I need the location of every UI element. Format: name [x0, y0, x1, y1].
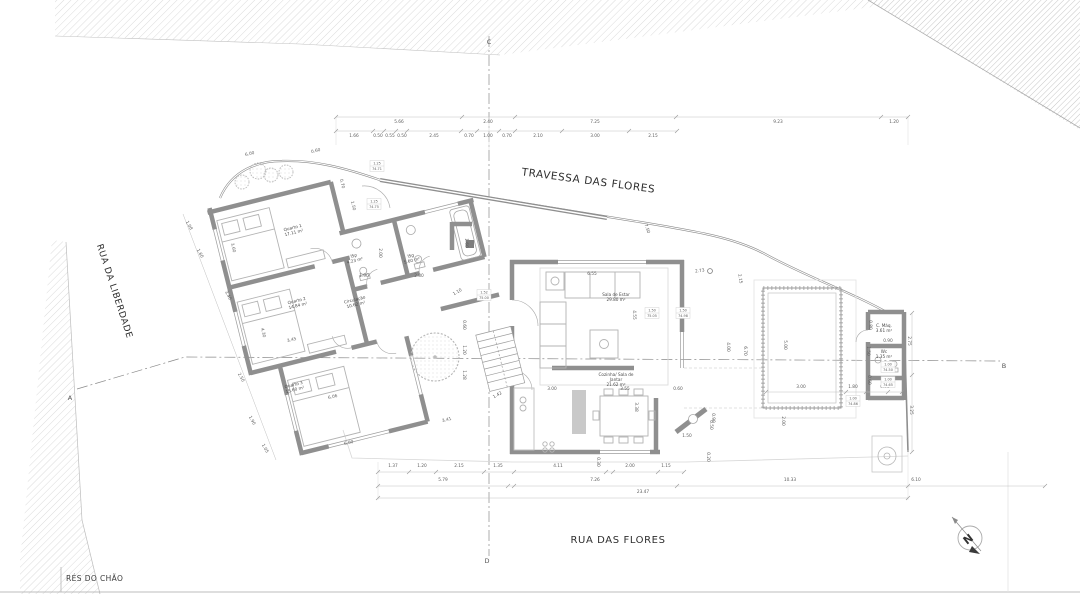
dimension-label: 0.55 [385, 133, 395, 139]
dimension-label: 2.00 [780, 416, 786, 426]
north-letter: N [961, 531, 976, 547]
room-label: Sala de Estar29.80 m² [602, 292, 630, 302]
dimension-label: 4.55 [631, 310, 637, 320]
window-level-value: 74.86 [848, 402, 858, 406]
dimension-label: 1.37 [388, 463, 398, 469]
dimension-label: 6.06 [327, 393, 338, 401]
dimension-label: 1.42 [492, 390, 504, 400]
room-label: Quarto 117.11 m² [283, 223, 304, 237]
dimension-label: 2.40 [483, 119, 493, 125]
dimension-label: 1.05 [260, 443, 270, 454]
dimension-label: 1.10 [452, 287, 464, 297]
dimension-label: 1.90 [247, 415, 257, 426]
dimension-label: 1.20 [417, 463, 427, 469]
street-travessa-das-flores: TRAVESSA DAS FLORES [520, 166, 656, 196]
dimension-label: 4.11 [553, 463, 563, 469]
dimension-label: 0.70 [338, 178, 346, 189]
dimension-label: 4.30 [259, 327, 267, 338]
dimension-label: 0.50 [373, 133, 383, 139]
dimension-label: 3.00 [590, 133, 600, 139]
dimension-label: 3.00 [796, 384, 806, 390]
section-marker-d: D [484, 557, 489, 565]
window-sill-value: 1.00 [884, 378, 892, 382]
dimension-label: 1.60 [463, 238, 469, 248]
window-sill-value: 1.50 [648, 309, 656, 313]
room-label: C. Máq.3.61 m² [876, 323, 893, 333]
poolhouse-fixtures [872, 357, 902, 472]
reference-point-marker [708, 269, 713, 274]
section-marker-c: C [487, 38, 492, 46]
dimension-label: 2.00 [625, 463, 635, 469]
dimension-label: 2.15 [736, 274, 744, 285]
window-sill-value: 1.00 [884, 363, 892, 367]
dimension-label: 0.50 [397, 133, 407, 139]
room-label: Wc1.35 m² [876, 349, 893, 359]
dimension-label: 0.60 [673, 386, 683, 392]
dimension-label: 23.47 [637, 489, 650, 495]
dimension-label: 0.80 [867, 320, 873, 330]
room-label: Quarto 315.60 m² [284, 380, 305, 394]
room-label: Quarto 214.84 m² [287, 296, 308, 310]
dimension-label: 1.28 [461, 370, 467, 380]
furniture [514, 268, 668, 452]
dimension-label: 3.45 [286, 336, 297, 344]
dimension-label: 2.15 [648, 133, 658, 139]
dimension-label: 2.00 [377, 248, 383, 258]
floor-plan-sheet: RÉS DO CHÃO [0, 0, 1080, 600]
dimension-label: 7.26 [590, 477, 600, 483]
floor-plan-canvas: RÉS DO CHÃO [0, 0, 1080, 600]
window-sill-value: 1.52 [480, 291, 488, 295]
window-tag: 1.0074.86 [846, 396, 860, 407]
dimension-label: 4.00 [725, 342, 731, 352]
room-area: 29.80 m² [606, 297, 625, 302]
dimension-label: 1.20 [889, 119, 899, 125]
dimension-label: 1.35 [493, 463, 503, 469]
dimension-label: 1.80 [848, 384, 858, 390]
room-label: Circulação10.62 m² [343, 294, 367, 309]
window-sill-value: 1.50 [679, 309, 687, 313]
north-arrow: N [952, 517, 982, 554]
dimension-label: 1.50 [865, 346, 871, 356]
dimension-label: 5.79 [438, 477, 448, 483]
dimension-label: 0.60 [866, 375, 872, 385]
window-level-value: 74.65 [883, 383, 893, 387]
window-level-value: 75.00 [479, 296, 489, 300]
porch-annex [676, 409, 706, 432]
pool [763, 288, 841, 408]
dimension-label: 3.00 [547, 386, 557, 392]
dimension-label: 1.20 [461, 345, 467, 355]
beds [217, 197, 368, 453]
window-sill-value: 1.25 [373, 162, 381, 166]
window-level-value: 74.71 [372, 167, 382, 171]
street-rua-da-liberdade: RUA DA LIBERDADE [94, 243, 134, 340]
dimension-label: 0.60 [461, 320, 467, 330]
window-sill-value: 1.00 [849, 397, 857, 401]
title-block: RÉS DO CHÃO [0, 452, 1080, 592]
dimension-label: 6.55 [587, 271, 597, 277]
window-level-value: 74.75 [369, 205, 379, 209]
dimension-label: 2.80 [414, 273, 424, 279]
dimension-label: 7.25 [590, 119, 600, 125]
window-tag: 1.0074.50 [881, 362, 895, 373]
dimension-label: 10.33 [784, 477, 797, 483]
dimension-label: 1.00 [483, 133, 493, 139]
dimension-lines [183, 117, 1045, 500]
dimension-label: 0.20 [705, 452, 711, 462]
window-tag: 1.5075.05 [645, 308, 659, 319]
stairs [476, 326, 525, 391]
dimension-label: 1.50 [682, 433, 692, 439]
dimension-label: 0.70 [464, 133, 474, 139]
dimension-label: 1.15 [661, 463, 671, 469]
dimension-label: 6.00 [343, 439, 354, 447]
section-marker-b: B [1002, 362, 1006, 370]
window-tag: 1.5275.00 [477, 290, 491, 301]
room-area: 1.35 m² [876, 354, 893, 359]
dimension-label: 0.60 [310, 147, 321, 155]
window-level-value: 74.50 [883, 368, 893, 372]
street-rua-das-flores: RUA DAS FLORES [570, 535, 665, 546]
dimension-label: 0.90 [883, 338, 893, 344]
wing-walls [207, 145, 526, 463]
dimension-label: 2.73 [695, 267, 706, 274]
bedroom-wing [207, 145, 526, 463]
window-level-value: 75.05 [647, 314, 657, 318]
dimension-label: 0.70 [502, 133, 512, 139]
dimension-label: 3.38 [633, 402, 639, 412]
dimension-label: 6.70 [742, 346, 748, 356]
floor-title: RÉS DO CHÃO [66, 574, 123, 583]
dimension-label: 3.25 [908, 405, 914, 415]
dimension-label: 2.15 [454, 463, 464, 469]
site-hatch [20, 0, 1080, 594]
dimension-label: 1.90 [359, 273, 369, 279]
window-tag: 1.5074.98 [676, 308, 690, 319]
dimension-label: 2.75 [906, 336, 912, 346]
dimension-label: 6.10 [911, 477, 921, 483]
dimension-label: 1.66 [349, 133, 359, 139]
dimension-label: 2.50 [236, 372, 246, 383]
dimension-label: 1.60 [195, 248, 205, 259]
window-tag: 1.2574.71 [370, 161, 384, 172]
dimension-label: 2.45 [429, 133, 439, 139]
dimension-label: 7.50 [643, 223, 652, 234]
dimension-label: 3.60 [229, 242, 237, 253]
dimension-label: 5.00 [782, 340, 788, 350]
dimension-label: 3.55 [620, 386, 630, 392]
window-tag: 1.2574.75 [367, 199, 381, 210]
window-sill-value: 1.25 [370, 200, 378, 204]
dimension-label: 3.41 [441, 416, 452, 424]
dimension-label: 2.10 [533, 133, 543, 139]
window-tag: 1.0074.65 [881, 377, 895, 388]
section-marker-a: A [68, 394, 73, 402]
dimension-label: 6.00 [244, 150, 255, 158]
dimension-label: 0.90 [710, 413, 716, 423]
room-area: 3.61 m² [876, 328, 893, 333]
dimension-label: 5.66 [394, 119, 404, 125]
dimension-label: 9.23 [773, 119, 783, 125]
dimension-label: 1.50 [349, 200, 357, 211]
dimension-label: 0.30 [595, 457, 601, 467]
window-level-value: 74.98 [678, 314, 688, 318]
dimension-label: 1.08 [184, 220, 194, 231]
section-lines [77, 36, 1000, 556]
